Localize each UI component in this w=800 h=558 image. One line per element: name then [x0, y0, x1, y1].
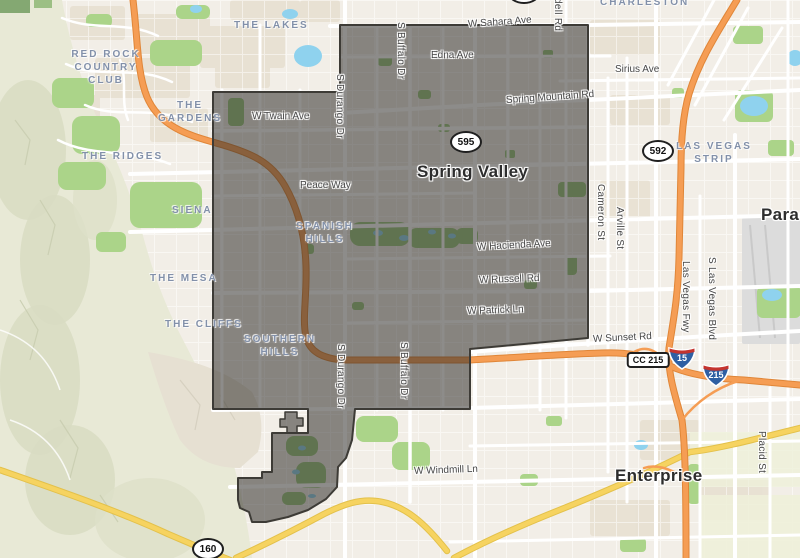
route-shield-160: 160	[192, 538, 224, 558]
interstate-shield-15-number: 15	[668, 353, 696, 363]
route-shield-595: 595	[450, 131, 482, 153]
route-shield-160-number: 160	[200, 544, 217, 555]
map-canvas[interactable]: Spring Valley Paradise Enterprise THE LA…	[0, 0, 800, 558]
route-shield-cc-215: CC 215	[627, 352, 670, 368]
route-shield-592-number: 592	[650, 146, 667, 157]
interstate-shield-215-number: 215	[702, 370, 730, 380]
route-shield-595-number: 595	[458, 137, 475, 148]
airport-area	[742, 218, 800, 344]
interstate-shield-215: 215	[702, 361, 730, 387]
route-shield-592: 592	[642, 140, 674, 162]
interstate-shield-15: 15	[668, 344, 696, 370]
map-graphics	[0, 0, 800, 558]
